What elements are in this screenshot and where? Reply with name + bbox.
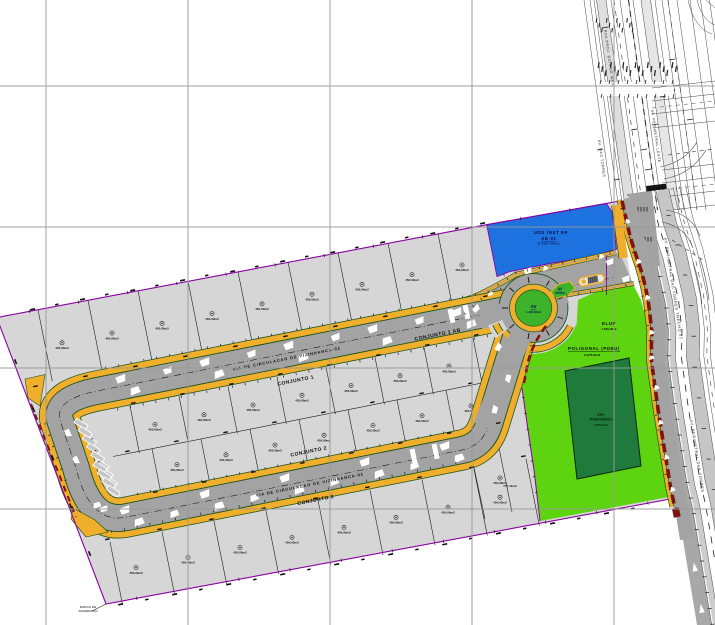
svg-text:1.492,06m2: 1.492,06m2 [526, 310, 541, 314]
svg-text:450,00m2: 450,00m2 [55, 346, 69, 350]
svg-text:450,00m2: 450,00m2 [393, 379, 407, 383]
svg-text:450,00m2: 450,00m2 [355, 288, 369, 292]
svg-text:AV: AV [558, 287, 563, 291]
svg-text:450,00m2: 450,00m2 [344, 389, 358, 393]
svg-text:168,92m2: 168,92m2 [555, 292, 566, 295]
svg-text:450,00m2: 450,00m2 [405, 278, 419, 282]
svg-text:777,41m2: 777,41m2 [503, 484, 517, 488]
svg-text:450,00m2: 450,00m2 [268, 448, 282, 452]
svg-text:450,00m2: 450,00m2 [295, 399, 309, 403]
svg-text:450,00m2: 450,00m2 [305, 297, 319, 301]
svg-text:450,00m2: 450,00m2 [233, 551, 247, 555]
svg-text:7.938,18m2: 7.938,18m2 [602, 327, 617, 331]
svg-text:450,00m2: 450,00m2 [493, 501, 507, 505]
svg-text:450,00m2: 450,00m2 [105, 336, 119, 340]
svg-text:AE 01: AE 01 [541, 236, 556, 241]
svg-text:450,00m2: 450,00m2 [337, 531, 351, 535]
svg-text:450,00m2: 450,00m2 [197, 418, 211, 422]
svg-text:450,00m2: 450,00m2 [455, 268, 469, 272]
svg-text:7.265,00m2: 7.265,00m2 [594, 423, 609, 427]
svg-text:450,00m2: 450,00m2 [415, 419, 429, 423]
svg-text:AMARRACAO: AMARRACAO [78, 609, 98, 613]
svg-text:450,00m2: 450,00m2 [317, 439, 331, 443]
svg-text:450,00m2: 450,00m2 [129, 571, 143, 575]
svg-text:450,00m2: 450,00m2 [442, 369, 456, 373]
svg-text:450,00m2: 450,00m2 [441, 511, 455, 515]
svg-text:8.668,68m2: 8.668,68m2 [538, 242, 560, 246]
svg-text:450,00m2: 450,00m2 [148, 428, 162, 432]
svg-text:450,00m2: 450,00m2 [246, 408, 260, 412]
svg-text:POLIGONAL (PDEU): POLIGONAL (PDEU) [568, 346, 620, 351]
svg-text:450,00m2: 450,00m2 [366, 429, 380, 433]
svg-text:450,00m2: 450,00m2 [255, 307, 269, 311]
svg-text:14.976,81m2: 14.976,81m2 [584, 353, 601, 357]
svg-text:450,00m2: 450,00m2 [389, 521, 403, 525]
svg-text:450,00m2: 450,00m2 [205, 317, 219, 321]
svg-text:EPU: EPU [598, 413, 606, 417]
svg-text:450,00m2: 450,00m2 [170, 468, 184, 472]
svg-text:TRINCHEIRA 1: TRINCHEIRA 1 [589, 418, 613, 422]
svg-text:450,00m2: 450,00m2 [155, 327, 169, 331]
svg-text:UOS INST EP: UOS INST EP [534, 230, 568, 235]
svg-text:AV: AV [531, 304, 537, 309]
svg-text:450,00m2: 450,00m2 [219, 458, 233, 462]
svg-text:450,00m2: 450,00m2 [285, 541, 299, 545]
